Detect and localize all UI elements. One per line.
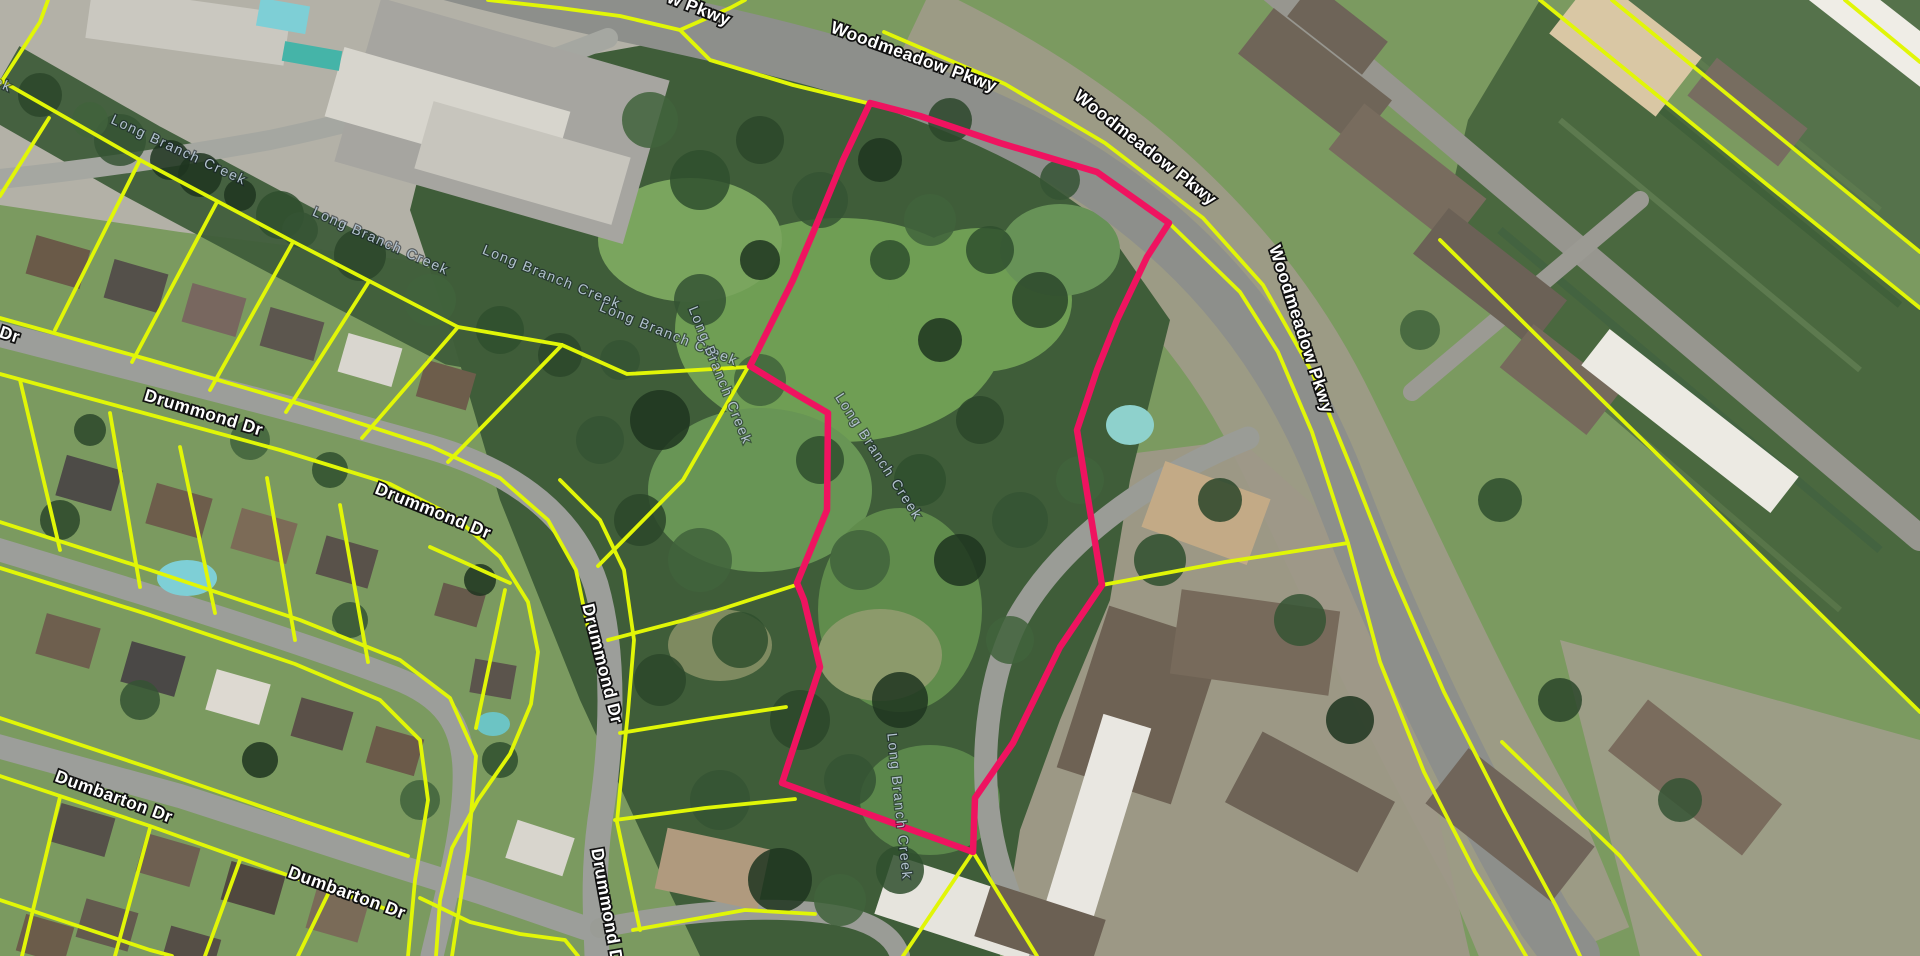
tree-canopy: [242, 742, 278, 778]
tree-canopy: [670, 150, 730, 210]
tree-canopy: [992, 492, 1048, 548]
tree-canopy: [1012, 272, 1068, 328]
tree-canopy: [712, 612, 768, 668]
tree-canopy: [690, 770, 750, 830]
tree-canopy: [956, 396, 1004, 444]
tree-canopy: [1400, 310, 1440, 350]
tree-canopy: [934, 534, 986, 586]
tree-canopy: [1478, 478, 1522, 522]
tree-canopy: [120, 680, 160, 720]
tree-canopy: [404, 274, 456, 326]
tree-canopy: [1198, 478, 1242, 522]
map-canvas[interactable]: Long Branch CreekLong Branch CreekLong B…: [0, 0, 1920, 956]
tree-canopy: [830, 530, 890, 590]
tree-canopy: [400, 780, 440, 820]
tree-canopy: [1658, 778, 1702, 822]
tree-canopy: [796, 436, 844, 484]
satellite-map[interactable]: Long Branch CreekLong Branch CreekLong B…: [0, 0, 1920, 956]
tree-canopy: [904, 194, 956, 246]
tree-canopy: [668, 528, 732, 592]
tree-canopy: [538, 333, 582, 377]
tree-canopy: [614, 494, 666, 546]
swimming-pool: [1106, 405, 1154, 445]
tree-canopy: [986, 616, 1034, 664]
tree-canopy: [918, 318, 962, 362]
tree-canopy: [74, 414, 106, 446]
swimming-pool: [476, 712, 510, 736]
tree-canopy: [40, 500, 80, 540]
tree-canopy: [858, 138, 902, 182]
tree-canopy: [870, 240, 910, 280]
tree-canopy: [1274, 594, 1326, 646]
tree-canopy: [622, 92, 678, 148]
tree-canopy: [1326, 696, 1374, 744]
tree-canopy: [634, 654, 686, 706]
tree-canopy: [748, 848, 812, 912]
tree-canopy: [740, 240, 780, 280]
tree-canopy: [1538, 678, 1582, 722]
tree-canopy: [736, 116, 784, 164]
tree-canopy: [966, 226, 1014, 274]
tree-canopy: [872, 672, 928, 728]
tree-canopy: [576, 416, 624, 464]
house: [469, 659, 516, 700]
tree-canopy: [814, 874, 866, 926]
tree-canopy: [630, 390, 690, 450]
